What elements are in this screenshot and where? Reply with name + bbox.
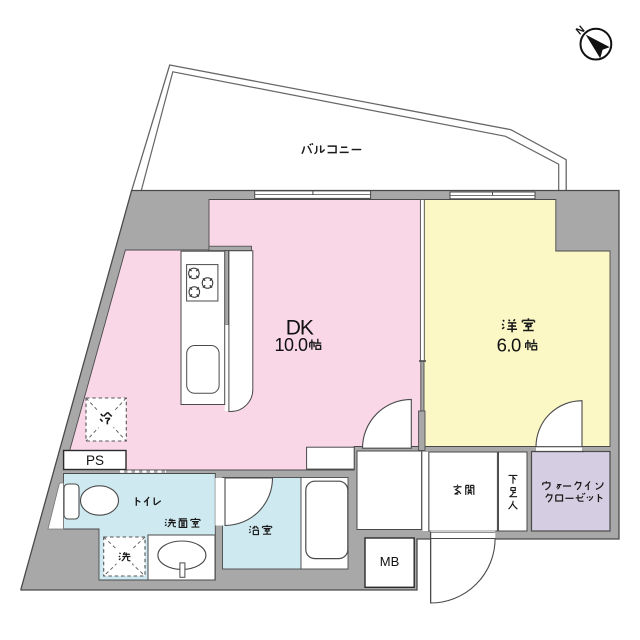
svg-text:10.0: 10.0 (274, 335, 308, 355)
svg-text:MB: MB (380, 554, 400, 569)
svg-text:6.0: 6.0 (497, 334, 521, 355)
svg-text:PS: PS (86, 453, 104, 468)
